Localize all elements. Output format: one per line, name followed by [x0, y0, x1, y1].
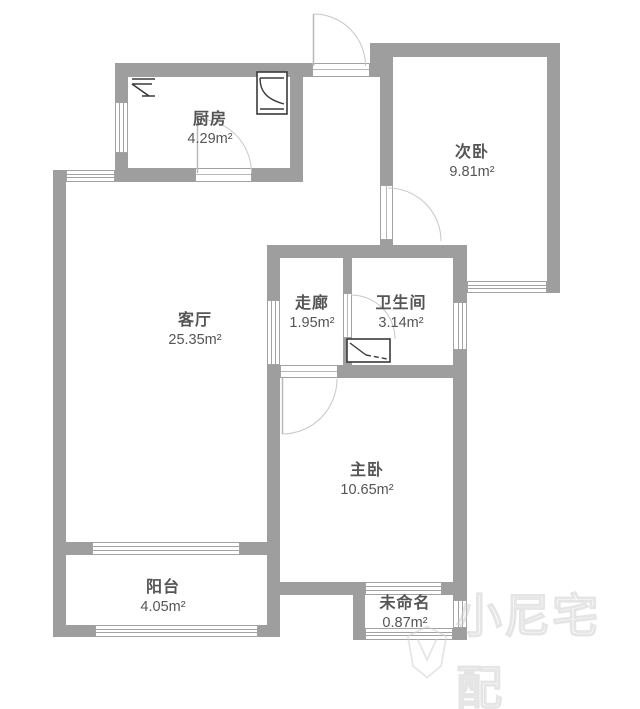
brand-logo-icon [406, 621, 448, 683]
room-area: 1.95m² [289, 314, 334, 333]
room-label-corridor: 走廊 1.95m² [289, 294, 334, 333]
room-name: 卫生间 [375, 294, 426, 314]
door-swing-second-bedroom [387, 187, 443, 242]
window-corridor-left [267, 300, 280, 365]
wall [252, 168, 303, 182]
room-area: 4.29m² [187, 130, 232, 149]
wall [453, 350, 467, 600]
wall [370, 43, 560, 57]
room-name: 厨房 [187, 110, 232, 130]
room-label-master-bedroom: 主卧 10.65m² [340, 461, 393, 500]
wall [380, 57, 393, 185]
watermark: 小尼宅配 [406, 580, 640, 709]
window-livingroom-topleft [66, 170, 115, 182]
wall [53, 170, 66, 637]
wall [267, 365, 280, 637]
room-area: 10.65m² [340, 481, 393, 500]
room-name: 次卧 [449, 143, 494, 163]
room-area: 25.35m² [168, 331, 221, 350]
floor-plan: 厨房 4.29m² 次卧 9.81m² 客厅 25.35m² 走廊 1.95m²… [0, 0, 640, 709]
wall [290, 77, 303, 182]
wall [240, 542, 267, 555]
room-name: 客厅 [168, 311, 221, 331]
wall [115, 63, 128, 102]
door-swing-entry [312, 13, 372, 69]
wall [353, 595, 365, 640]
kitchen-sink-icon [130, 76, 158, 100]
room-name: 走廊 [289, 294, 334, 314]
room-name: 主卧 [340, 461, 393, 481]
wall [343, 258, 352, 293]
wall [453, 245, 467, 302]
room-label-living-room: 客厅 25.35m² [168, 311, 221, 350]
room-name: 阳台 [140, 578, 185, 598]
window-balcony-bottom [95, 625, 258, 637]
room-area: 3.14m² [375, 314, 426, 333]
window-bathroom-right [453, 302, 467, 350]
watermark-text: 小尼宅配 [456, 580, 640, 709]
window-kitchen-left [115, 102, 128, 153]
room-label-second-bedroom: 次卧 9.81m² [449, 143, 494, 182]
wall [53, 625, 95, 637]
room-area: 4.05m² [140, 598, 185, 617]
door-master-bedroom [280, 365, 338, 378]
wall [66, 542, 92, 555]
wall [115, 168, 195, 182]
door-swing-master-bedroom [281, 378, 339, 435]
wall [267, 245, 467, 258]
room-area: 9.81m² [449, 163, 494, 182]
wall [258, 625, 280, 637]
wall [547, 43, 560, 293]
window-living-balcony-divider [92, 542, 240, 555]
room-label-balcony: 阳台 4.05m² [140, 578, 185, 617]
wall [280, 582, 365, 595]
room-label-bathroom: 卫生间 3.14m² [375, 294, 426, 333]
wall [267, 258, 280, 300]
window-second-bedroom-bottom [467, 281, 547, 293]
wall [338, 365, 467, 378]
water-heater-icon [256, 71, 288, 115]
room-label-kitchen: 厨房 4.29m² [187, 110, 232, 149]
washbasin-icon [346, 338, 392, 364]
